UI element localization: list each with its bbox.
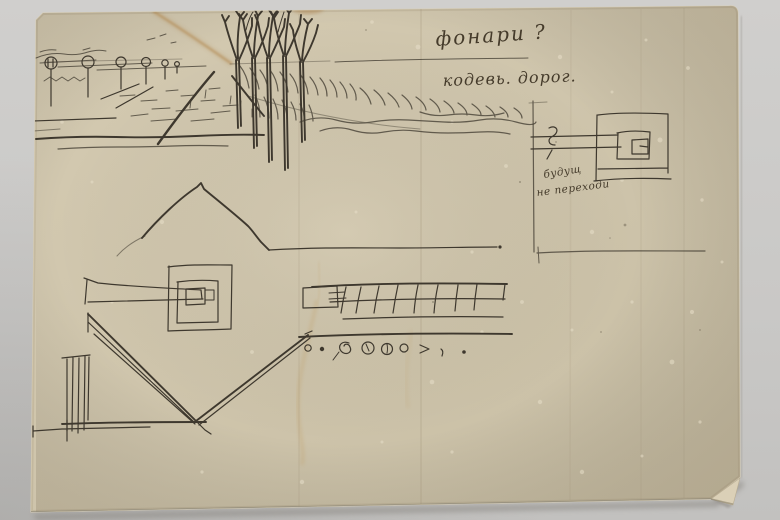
period-dot bbox=[463, 351, 465, 353]
paper-right-shadow bbox=[741, 16, 742, 478]
photo-of-sketch: фонари ? кодевь. дорог. будущ не переход… bbox=[0, 0, 780, 520]
sketch-photo-canvas: фонари ? кодевь. дорог. будущ не переход… bbox=[0, 0, 780, 520]
dot-mark bbox=[320, 347, 323, 350]
paper-sheet bbox=[31, 2, 740, 512]
baseline-end-dot bbox=[498, 245, 501, 248]
paper-vignette bbox=[36, 5, 740, 512]
paper-texture bbox=[31, 2, 740, 512]
